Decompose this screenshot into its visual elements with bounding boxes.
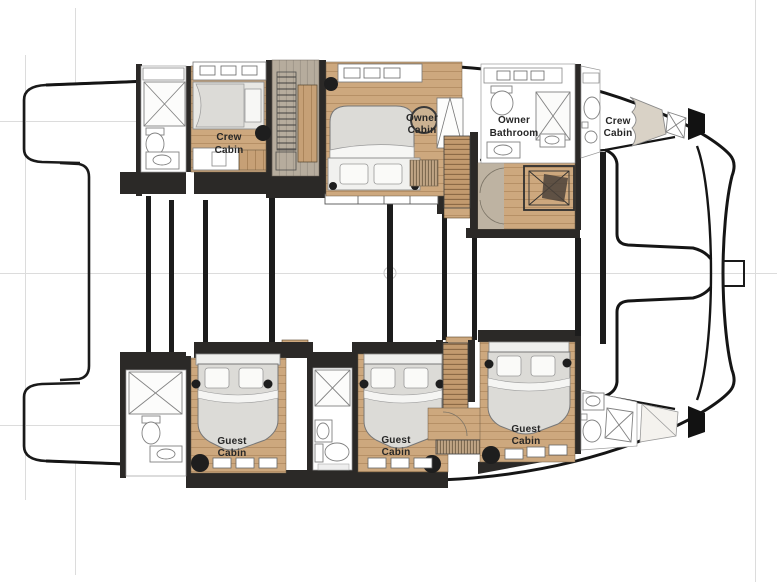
shelf — [583, 73, 599, 83]
guest-bathroom-aft — [126, 370, 186, 476]
pillow — [371, 368, 395, 388]
bed — [485, 342, 572, 434]
toilet — [491, 86, 513, 115]
owner-stairs — [444, 136, 470, 208]
shower — [315, 370, 350, 406]
room-label-crew-cabin-port: Crew — [216, 132, 241, 143]
pillow — [205, 368, 229, 388]
tech-corridor — [272, 60, 319, 176]
pillow — [497, 356, 521, 376]
bed — [193, 82, 264, 129]
pillow — [374, 164, 402, 184]
shower — [129, 372, 182, 414]
stool — [324, 77, 338, 91]
floor-plan: Crew Cabin — [0, 0, 777, 582]
headboard — [489, 342, 569, 353]
pillow — [340, 164, 368, 184]
crew-cabin-port: Crew Cabin — [191, 62, 271, 172]
room-label-crew-cabin-port-2: Cabin — [215, 145, 244, 156]
toilet — [583, 420, 601, 442]
rug — [410, 160, 438, 186]
toilet — [315, 443, 349, 462]
counter — [484, 68, 562, 83]
shelf — [143, 68, 184, 80]
room-label-guest-cabin-aft-2: Cabin — [218, 448, 247, 459]
shower — [605, 408, 633, 442]
table — [524, 166, 574, 210]
toilet — [142, 416, 160, 444]
room-label-guest-cabin-forward: Guest — [511, 424, 541, 435]
toilet — [584, 97, 600, 119]
crew-bathroom-port — [141, 66, 186, 172]
stool — [255, 125, 271, 141]
stool — [191, 454, 209, 472]
toilet — [146, 128, 164, 155]
foyer — [478, 163, 575, 229]
room-label-guest-cabin-forward-2: Cabin — [512, 436, 541, 447]
locker — [298, 85, 317, 162]
drawers — [368, 458, 432, 468]
headboard — [196, 354, 280, 365]
sink — [146, 152, 179, 169]
guest-bathroom-mid — [313, 368, 352, 470]
room-label-owner-bathroom: Owner — [498, 115, 530, 126]
room-label-owner-bathroom-2: Bathroom — [490, 128, 539, 139]
cloth — [542, 174, 568, 202]
room-label-guest-cabin-mid-2: Cabin — [382, 447, 411, 458]
room-label-guest-cabin-aft: Guest — [217, 436, 247, 447]
pillow — [239, 368, 263, 388]
headboard — [364, 354, 442, 365]
shower — [536, 92, 570, 140]
room-label-owner-cabin: Owner — [406, 113, 438, 124]
room-label-crew-cabin-bow-2: Cabin — [604, 128, 633, 139]
crew-bathroom-bow — [581, 66, 600, 158]
sink — [585, 131, 597, 143]
ladder — [277, 72, 296, 150]
shower — [144, 82, 185, 126]
guest-cabin-forward: Guest Cabin — [480, 342, 575, 464]
top-drawers — [193, 62, 266, 80]
sink — [315, 420, 332, 442]
sink — [150, 446, 182, 462]
pillow — [531, 356, 555, 376]
owner-cabin: Owner Cabin — [324, 62, 463, 196]
room-label-guest-cabin-mid: Guest — [381, 435, 411, 446]
owner-bathroom: Owner Bathroom — [481, 64, 575, 163]
stool — [482, 446, 500, 464]
sink — [583, 393, 604, 410]
drawers — [213, 458, 277, 468]
guest-cabin-aft: Guest Cabin — [191, 354, 286, 473]
top-drawers — [338, 64, 422, 82]
bath-mat — [318, 464, 349, 470]
pillow — [245, 89, 261, 122]
room-label-owner-cabin-2: Cabin — [408, 125, 437, 136]
pillow — [404, 368, 428, 388]
room-label-crew-cabin-bow: Crew — [605, 116, 630, 127]
